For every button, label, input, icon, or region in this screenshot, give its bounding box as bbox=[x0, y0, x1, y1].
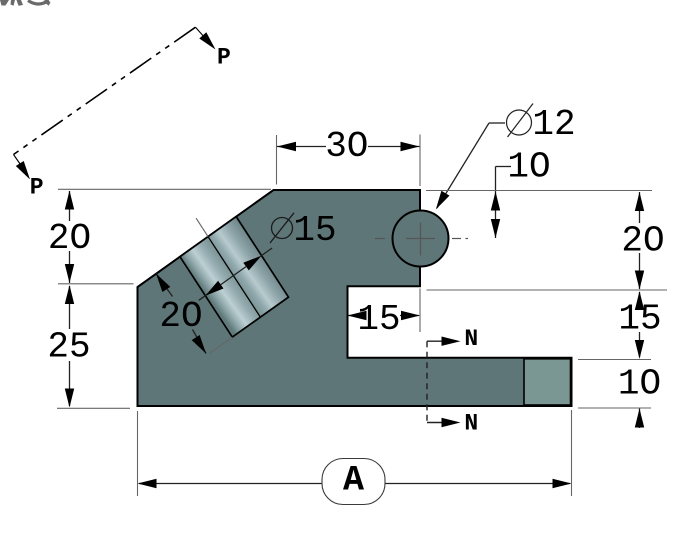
svg-text:15: 15 bbox=[618, 299, 661, 340]
svg-text:15: 15 bbox=[293, 210, 336, 251]
svg-text:P: P bbox=[217, 45, 231, 71]
svg-text:2O: 2O bbox=[48, 218, 91, 259]
svg-text:2O: 2O bbox=[159, 296, 202, 337]
svg-text:12: 12 bbox=[532, 104, 575, 145]
svg-text:3O: 3O bbox=[325, 126, 368, 167]
svg-text:15: 15 bbox=[357, 299, 400, 340]
svg-text:2O: 2O bbox=[621, 221, 664, 262]
svg-text:P: P bbox=[30, 174, 44, 200]
svg-text:N: N bbox=[464, 411, 478, 437]
svg-text:N: N bbox=[464, 326, 478, 352]
svg-text:A: A bbox=[343, 461, 364, 501]
svg-text:1O: 1O bbox=[507, 147, 550, 188]
svg-text:1O: 1O bbox=[618, 364, 661, 405]
svg-text:25: 25 bbox=[47, 327, 90, 368]
